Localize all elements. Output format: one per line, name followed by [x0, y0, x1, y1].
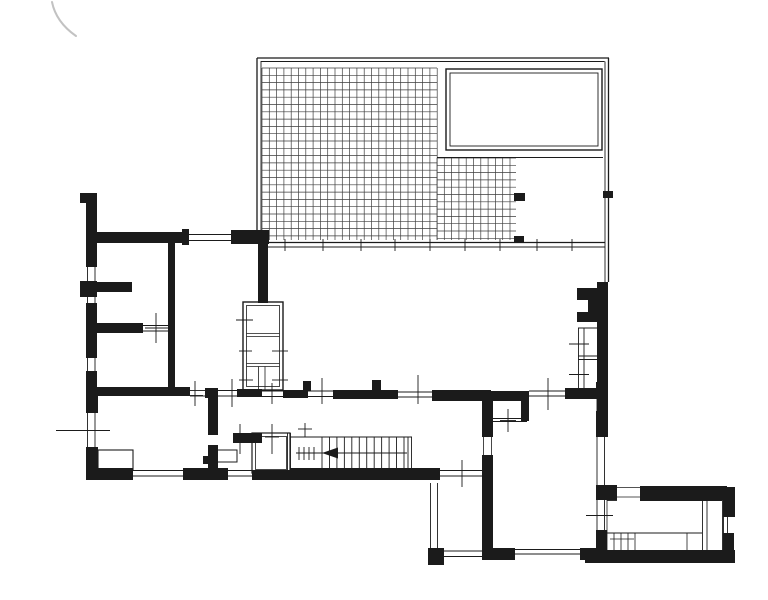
wall-segment	[283, 390, 308, 398]
floor-plan-drawing	[0, 0, 768, 600]
wall-segment	[482, 392, 493, 437]
wall-segment	[203, 456, 212, 464]
wall-segment	[640, 486, 727, 500]
wall-segment	[723, 487, 735, 517]
wall-segment	[514, 236, 524, 243]
wall-segment	[428, 548, 444, 565]
wall-segment	[514, 193, 525, 201]
wall-segment	[168, 243, 175, 390]
wall-segment	[237, 389, 262, 397]
wall-segment	[182, 229, 189, 245]
wall-segment	[482, 548, 515, 560]
wall-segment	[596, 530, 607, 551]
wall-segment	[600, 485, 617, 500]
wall-segment	[333, 390, 398, 399]
wall-segment	[86, 468, 133, 480]
wall-segment	[723, 533, 734, 563]
wall-segment	[86, 388, 98, 413]
wall-segment	[95, 323, 143, 333]
wall-segment	[303, 381, 311, 391]
scan-page	[0, 0, 768, 600]
wall-segment	[80, 281, 86, 297]
wall-segment	[258, 243, 268, 303]
wall-segment	[208, 398, 218, 435]
wall-segment	[372, 380, 381, 394]
wall-segment	[183, 468, 228, 480]
wall-segment	[97, 282, 132, 292]
wall-segment	[80, 193, 97, 203]
wall-segment	[86, 232, 188, 243]
wall-segment	[585, 550, 735, 563]
wall-segment	[86, 281, 97, 297]
wall-segment	[252, 470, 290, 480]
wall-segment	[597, 282, 608, 437]
wall-segment	[205, 388, 218, 398]
wall-segment	[86, 203, 97, 233]
wall-segment	[231, 230, 269, 244]
wall-segment	[86, 243, 97, 267]
wall-segment	[603, 191, 613, 198]
wall-segment	[482, 455, 493, 557]
wall-segment	[233, 433, 262, 443]
wall-segment	[521, 392, 529, 421]
wall-segment	[290, 468, 440, 480]
wall-segment	[97, 387, 190, 396]
